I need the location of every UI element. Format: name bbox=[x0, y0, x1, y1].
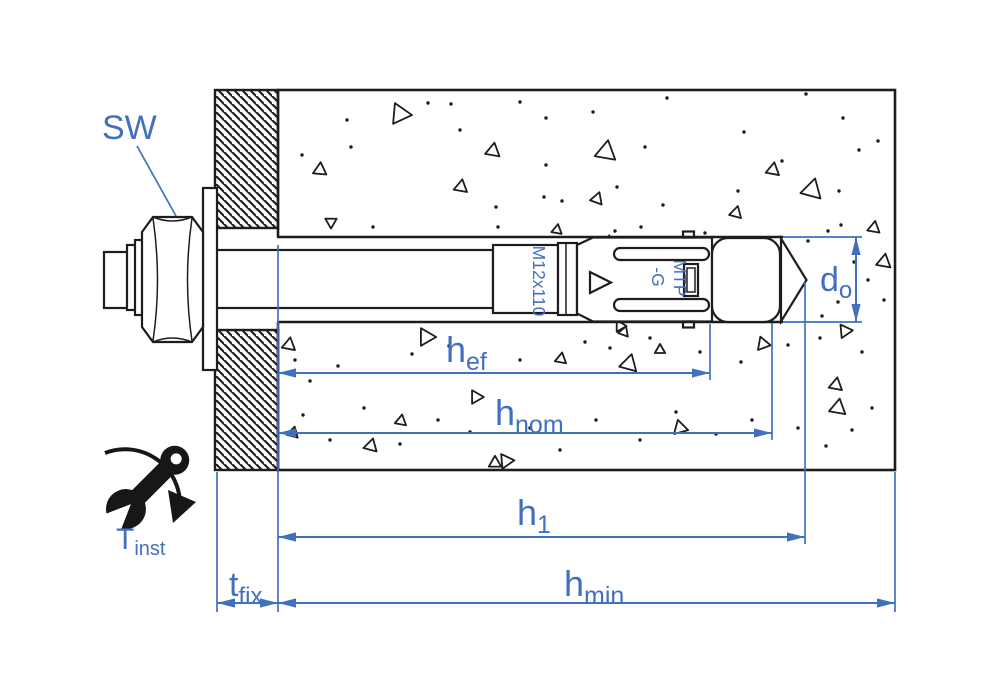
anchor-cone bbox=[712, 238, 780, 322]
texture-dot bbox=[643, 145, 646, 148]
texture-dot bbox=[613, 229, 616, 232]
texture-dot bbox=[591, 110, 594, 113]
sw-leader-line bbox=[137, 146, 176, 216]
anchor-size-marking: M12x110 bbox=[529, 246, 549, 317]
texture-dot bbox=[824, 444, 827, 447]
texture-dot bbox=[449, 102, 452, 105]
texture-dot bbox=[300, 153, 303, 156]
texture-dot bbox=[818, 336, 821, 339]
torque-arrow-head bbox=[168, 490, 196, 523]
anchor-installation-diagram: M12x110 MTP -G SW hef hnom bbox=[0, 0, 1000, 700]
texture-dot bbox=[308, 379, 311, 382]
texture-dot bbox=[293, 358, 296, 361]
texture-dot bbox=[866, 278, 869, 281]
dimension-t-fix: tfix bbox=[217, 566, 278, 610]
texture-dot bbox=[494, 205, 497, 208]
texture-dot bbox=[850, 428, 853, 431]
texture-dot bbox=[362, 406, 365, 409]
texture-dot bbox=[736, 189, 739, 192]
texture-dot bbox=[638, 438, 641, 441]
texture-dot bbox=[665, 96, 668, 99]
texture-dot bbox=[820, 314, 823, 317]
washer bbox=[203, 188, 217, 370]
bolt-stub bbox=[104, 252, 128, 308]
texture-dot bbox=[608, 346, 611, 349]
dimension-h-1: h1 bbox=[278, 492, 805, 539]
texture-dot bbox=[698, 350, 701, 353]
sw-label: SW bbox=[102, 109, 157, 147]
texture-dot bbox=[876, 139, 879, 142]
texture-dot bbox=[841, 116, 844, 119]
label-h-min: hmin bbox=[564, 563, 624, 610]
sleeve-collar bbox=[558, 243, 577, 315]
texture-dot bbox=[648, 336, 651, 339]
texture-dot bbox=[661, 203, 664, 206]
texture-dot bbox=[426, 101, 429, 104]
texture-dot bbox=[739, 360, 742, 363]
texture-dot bbox=[301, 413, 304, 416]
torque-wrench-icon: Tinst bbox=[93, 436, 199, 560]
texture-dot bbox=[615, 185, 618, 188]
texture-dot bbox=[674, 410, 677, 413]
texture-dot bbox=[349, 145, 352, 148]
texture-dot bbox=[742, 130, 745, 133]
texture-dot bbox=[870, 406, 873, 409]
anchor-model-marking-line2: -G bbox=[648, 267, 668, 286]
texture-dot bbox=[558, 448, 561, 451]
anchor-rod bbox=[200, 250, 493, 308]
texture-dot bbox=[703, 231, 706, 234]
texture-dot bbox=[796, 426, 799, 429]
texture-dot bbox=[560, 199, 563, 202]
texture-dot bbox=[371, 225, 374, 228]
texture-dot bbox=[860, 350, 863, 353]
hex-nut-body bbox=[142, 217, 203, 342]
texture-dot bbox=[594, 418, 597, 421]
texture-dot bbox=[410, 352, 413, 355]
bolt-end bbox=[104, 240, 144, 315]
texture-dot bbox=[518, 100, 521, 103]
texture-dot bbox=[544, 163, 547, 166]
hex-nut bbox=[142, 217, 203, 342]
texture-dot bbox=[583, 340, 586, 343]
texture-dot bbox=[518, 358, 521, 361]
texture-dot bbox=[639, 225, 642, 228]
fixture-plate-lower bbox=[215, 330, 278, 470]
texture-dot bbox=[882, 298, 885, 301]
texture-dot bbox=[328, 438, 331, 441]
anchor-model-marking-line1: MTP bbox=[670, 260, 690, 297]
texture-dot bbox=[544, 116, 547, 119]
texture-dot bbox=[804, 92, 807, 95]
fixture-plate-upper bbox=[215, 90, 278, 228]
texture-dot bbox=[837, 189, 840, 192]
texture-dot bbox=[839, 223, 842, 226]
texture-dot bbox=[780, 159, 783, 162]
texture-dot bbox=[542, 195, 545, 198]
texture-dot bbox=[398, 442, 401, 445]
label-t-inst: Tinst bbox=[116, 523, 166, 560]
texture-dot bbox=[826, 229, 829, 232]
texture-dot bbox=[806, 239, 809, 242]
texture-dot bbox=[496, 225, 499, 228]
texture-dot bbox=[336, 364, 339, 367]
dimension-h-min: hmin bbox=[278, 563, 895, 610]
texture-dot bbox=[786, 343, 789, 346]
texture-dot bbox=[458, 128, 461, 131]
texture-dot bbox=[436, 418, 439, 421]
texture-dot bbox=[750, 418, 753, 421]
drawing-canvas: M12x110 MTP -G SW hef hnom bbox=[0, 0, 1000, 700]
texture-dot bbox=[857, 148, 860, 151]
texture-dot bbox=[345, 118, 348, 121]
label-h-1: h1 bbox=[517, 492, 551, 539]
label-t-fix: tfix bbox=[229, 566, 262, 610]
